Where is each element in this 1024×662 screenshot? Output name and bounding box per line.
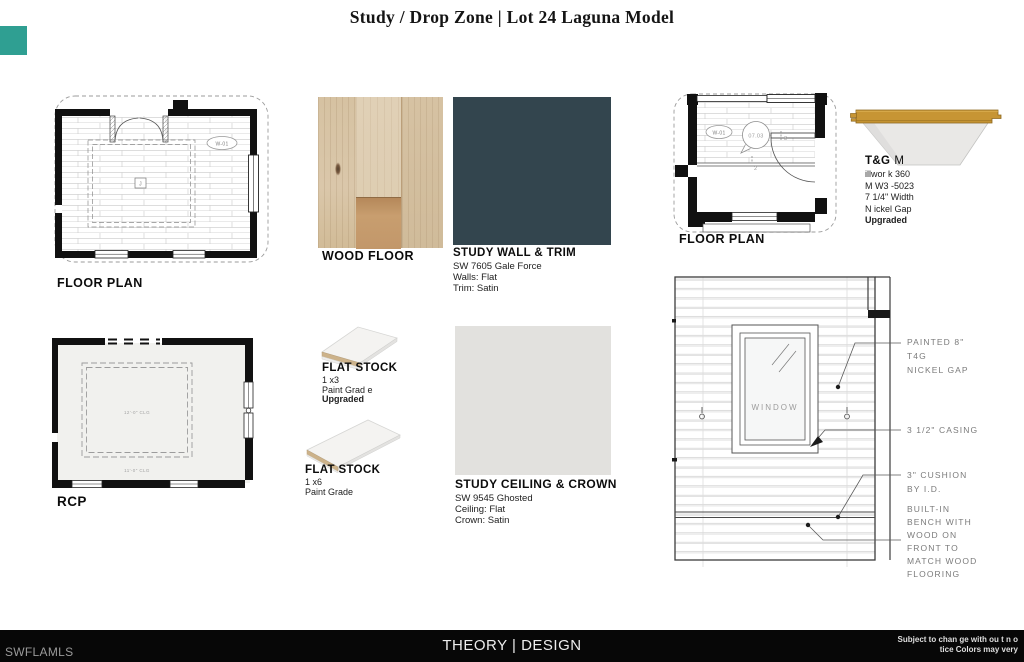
tg-gap: N ickel Gap <box>865 204 914 216</box>
disclaimer: Subject to chan ge with ou t n o tice Co… <box>898 635 1018 654</box>
wall-paint-title: STUDY WALL & TRIM <box>453 247 576 259</box>
drop-plan-caption: FLOOR PLAN <box>679 232 765 246</box>
rcp-caption: RCP <box>57 494 87 509</box>
note-cushion-line2: BY I.D. <box>907 484 941 494</box>
tg-title: T&GM <box>865 155 914 167</box>
header-block <box>868 310 890 318</box>
mls-watermark: SWFLAMLS <box>5 645 73 659</box>
wall-tick <box>672 458 677 462</box>
rcp-drawing: 12'-0" CLG 11'-0" CLG <box>48 330 260 496</box>
leaf-tag-2: 2 <box>754 166 757 172</box>
note-paneling-line3: NICKEL GAP <box>907 365 969 375</box>
wood-plank <box>401 97 443 248</box>
wood-plank <box>356 97 401 248</box>
mls-logo-square <box>0 26 27 55</box>
footer-bar: THEORY | DESIGN SWFLAMLS Subject to chan… <box>0 630 1024 662</box>
ceiling-finish: Ceiling: Flat <box>455 504 617 515</box>
tg-upgraded: Upgraded <box>865 215 914 227</box>
window-label: WINDOW <box>751 403 798 412</box>
annotations: PAINTED 8" T4G NICKEL GAP 3 1/2" CASING … <box>907 337 978 579</box>
drop-zone-floor-plan-drawing: W-01 07.03 3 2 <box>672 86 840 236</box>
window-symbol <box>767 95 815 103</box>
wood-floor-caption: WOOD FLOOR <box>322 249 414 263</box>
wall-paint-specs: STUDY WALL & TRIM SW 7605 Gale Force Wal… <box>453 247 576 294</box>
disclaimer-line2: tice Colors may very <box>898 645 1018 655</box>
outer-ceiling-height: 11'-0" CLG <box>124 468 150 473</box>
groove-tab <box>851 119 856 122</box>
note-bench-line4: FRONT TO <box>907 543 959 553</box>
wood-floor-swatch <box>318 97 442 248</box>
note-bench-line3: WOOD ON <box>907 530 957 540</box>
disclaimer-line1: Subject to chan ge with ou t n o <box>898 635 1018 645</box>
note-paneling-line1: PAINTED 8" <box>907 337 964 347</box>
window-tag: W-01 <box>215 142 228 148</box>
tg-width: 7 1/4" Width <box>865 192 914 204</box>
wood-plank <box>318 97 357 248</box>
window-tag: W-01 <box>712 131 725 137</box>
note-bench-line2: BENCH WITH <box>907 517 972 527</box>
note-casing: 3 1/2" CASING <box>907 425 978 435</box>
ceiling-paint-title: STUDY CEILING & CROWN <box>455 477 617 491</box>
note-bench-line1: BUILT-IN <box>907 504 950 514</box>
design-board: Study / Drop Zone | Lot 24 Laguna Model <box>0 0 1024 662</box>
bench-wall-elevation-drawing: WINDOW PAINTED 8" T4G NICKEL GAP 3 1/2" … <box>672 262 1024 598</box>
trim-finish: Trim: Satin <box>453 283 576 294</box>
flat-stock-1x3-specs: FLAT STOCK 1 x3 Paint Grad e Upgraded <box>322 362 397 405</box>
cased-wall <box>697 96 767 102</box>
tongue-tab <box>851 114 857 118</box>
door-tag-number: 07.03 <box>748 134 763 140</box>
wall-paint-swatch <box>453 97 611 245</box>
wood-plank-seam <box>356 197 401 249</box>
entry-step <box>703 224 810 232</box>
flat-stock-1x6-specs: FLAT STOCK 1 x6 Paint Grade <box>305 464 380 497</box>
note-cushion-line1: 3" CUSHION <box>907 470 967 480</box>
ceiling-paint-color-name: SW 9545 Ghosted <box>455 493 617 504</box>
flat-stock-grade: Paint Grade <box>305 488 380 498</box>
inner-ceiling-height: 12'-0" CLG <box>124 410 150 415</box>
junction-tag: J <box>139 182 142 188</box>
flat-stock-title: FLAT STOCK <box>305 464 380 476</box>
tongue-groove-specs: T&GM illwor k 360 M W3 -5023 7 1/4" Widt… <box>865 155 914 227</box>
page-title: Study / Drop Zone | Lot 24 Laguna Model <box>0 7 1024 28</box>
window: WINDOW <box>732 325 818 453</box>
wall-paint-color-name: SW 7605 Gale Force <box>453 261 576 272</box>
ceiling-paint-swatch <box>455 326 611 475</box>
note-paneling-line2: T4G <box>907 351 927 361</box>
tg-millwork: illwor k 360 <box>865 169 914 181</box>
crown-finish: Crown: Satin <box>455 515 617 526</box>
ceiling-paint-specs: STUDY CEILING & CROWN SW 9545 Ghosted Ce… <box>455 477 617 526</box>
study-plan-caption: FLOOR PLAN <box>57 276 143 290</box>
note-bench-line6: FLOORING <box>907 569 960 579</box>
wall-tick <box>672 319 676 323</box>
window-symbol <box>249 155 259 212</box>
flat-stock-title: FLAT STOCK <box>322 362 397 374</box>
tg-sku: M W3 -5023 <box>865 181 914 193</box>
note-bench-line5: MATCH WOOD <box>907 556 977 566</box>
leaf-tag-3: 3 <box>784 136 787 142</box>
floor-register <box>732 213 777 221</box>
opening-dashes <box>108 340 160 344</box>
study-floor-plan-drawing: J W-01 <box>45 90 277 272</box>
brand-text: THEORY | DESIGN <box>0 630 1024 662</box>
flat-stock-upgraded: Upgraded <box>322 395 397 405</box>
wall-finish: Walls: Flat <box>453 272 576 283</box>
